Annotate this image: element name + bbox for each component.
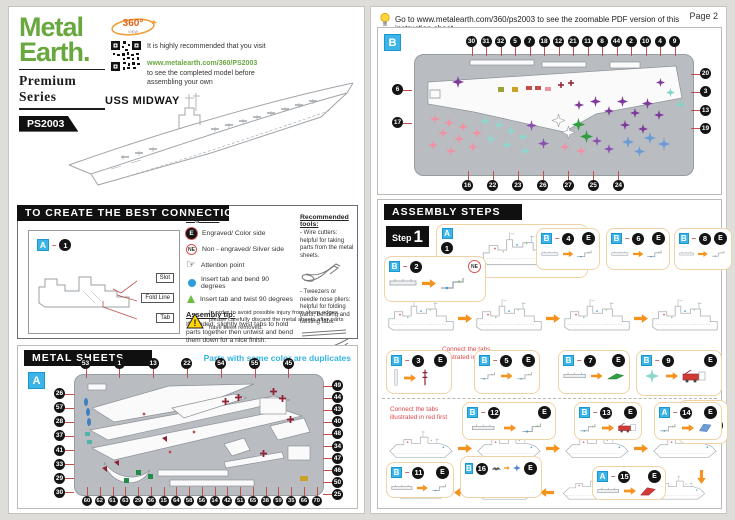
assembly-section: ASSEMBLY STEPS Step 1 A 1 B – 2 NE [377,199,722,509]
engraved-marker: E [714,232,727,245]
part-number-badge: 26 [54,388,65,399]
part-number-badge: 65 [248,496,258,506]
callout-part-number: 3 [412,355,424,367]
part-number-badge: 54 [215,358,226,369]
part-number-badge: 70 [312,496,322,506]
callout-b8: B – 8 E [674,228,732,270]
attention-hand-icon: ☞ [186,260,196,271]
callout-part-number: 12 [488,407,500,419]
part-number-badge: 18 [539,36,550,47]
page-1: Metal Earth. Premium Series PS2003 360° … [8,6,365,514]
callout-dash: – [481,408,485,417]
part-number-badge: 22 [181,358,192,369]
callout-b9: B – 9 E [636,350,722,396]
legend-non-engraved-label: Non - engraved/ Silver side [202,246,284,253]
part-folded-sketch [606,369,625,382]
fold-arrow-icon [698,250,708,258]
down-arrow [692,470,710,484]
callout-part-number: 7 [584,355,596,367]
fold-arrow-icon [422,279,436,288]
example-part-number: 1 [59,239,71,251]
part-number-badge: 41 [54,445,65,456]
callout-dash: – [692,234,696,243]
callout-part-number: 1 [441,242,453,254]
part-flat-sketch [611,249,630,259]
sheet-b-numbers-left: 617 [392,84,403,128]
part-number-badge: 6 [392,84,403,95]
callout-dash: – [625,234,629,243]
callout-part-number: 11 [412,467,424,479]
engraved-marker: E [524,462,537,475]
callout-sheet-badge: A [442,228,453,239]
fold-arrow-icon [591,372,603,380]
part-number-badge: 56 [197,496,207,506]
callout-sheet-badge: A [597,471,608,482]
legend-engraved: E Engraved/ Color side [186,228,294,239]
callout-sheet-badge: B [541,233,552,244]
example-dash: – [52,241,56,250]
part-number-badge: 15 [159,496,169,506]
callout-b12: B – 12 E [462,402,556,440]
part-number-badge: 1 [114,358,125,369]
callout-sheet-badge: B [391,355,402,366]
part-number-badge: 42 [222,496,232,506]
part-flat-sketch [563,371,588,381]
legend-twist: Insert tab and twist 90 degrees [186,295,294,303]
sheet-a-numbers-top: 5311322545545 [80,358,294,369]
callout-sheet-badge: B [479,355,490,366]
part-number-badge: 8 [597,36,608,47]
red-note-2: Connect the tabs illustrated in red firs… [390,406,454,422]
part-number-badge: 63 [120,496,130,506]
part-flat-sketch [391,369,401,387]
part-number-badge: 10 [640,36,651,47]
fold-arrow-icon [404,374,416,382]
part-number-badge: 29 [54,473,65,484]
part-number-badge: 44 [332,392,343,403]
callout-sheet-badge: B [679,233,689,244]
part-number-badge: 9 [669,36,680,47]
logo-earth: Earth. [19,40,109,65]
callout-sheet-badge: B [579,407,590,418]
part-number-badge: 60 [82,496,92,506]
wire-cutters-icon [300,260,350,284]
callout-sheet-badge: B [563,355,574,366]
part-number-badge: 59 [273,496,283,506]
callout-part-number: 13 [600,407,612,419]
engraved-marker: E [538,406,551,419]
engraved-marker: E [434,354,447,367]
part-result-sketch [617,421,637,434]
sheet-b-artwork [414,54,694,176]
tools-column: Recommended tools: - Wire cutters: helpf… [300,214,354,362]
part-folded-sketch [576,247,595,260]
callout-part-number: 14 [680,407,692,419]
part-number-badge: 45 [283,358,294,369]
engraved-marker: E [624,406,637,419]
part-number-badge: 26 [537,180,548,191]
callout-dash: – [403,262,407,271]
part-number-badge: 50 [332,477,343,488]
part-number-badge: 14 [210,496,220,506]
part-number-badge: 17 [392,117,403,128]
part-number-badge: 28 [54,416,65,427]
callout-a15: A – 15 E [592,466,666,500]
part-folded-sketch [419,369,431,387]
engraved-marker: E [612,354,625,367]
legend-non-engraved: NE Non - engraved/ Silver side [186,244,294,255]
callout-b13: B – 13 E [574,402,642,440]
step-1-badge: Step 1 [386,226,429,247]
part-number-badge: 34 [332,441,343,452]
part-number-badge: 37 [54,430,65,441]
warning-triangle-icon: ! [186,313,204,329]
callout-sheet-badge: B [465,463,473,474]
callout-part-number: 9 [662,355,674,367]
label-fold-line: Fold Line [141,293,174,303]
part-number-badge: 49 [332,380,343,391]
ship-illustration [61,65,366,208]
part-flat-sketch [391,483,414,493]
fold-arrow-icon [624,487,636,495]
callout-part-number: 16 [476,463,488,475]
non-engraved-icon: NE [186,244,197,255]
sheet-b-section: B [377,27,722,195]
next-step-arrow [634,310,648,328]
connection-example-box: A – 1 Slot Fold Line Tab [28,230,180,334]
example-sheet-badge: A [37,239,49,251]
next-step-arrow [546,440,560,458]
callout-a14: A – 14 E [654,402,722,440]
page-2: Go to www.metalearth.com/360/ps2003 to s… [370,6,727,514]
part-number-badge: 3 [700,86,711,97]
part-folded-sketch [711,247,727,260]
part-number-badge: 30 [54,487,65,498]
callout-b11: B – 11 E [386,462,454,498]
engraved-marker: E [582,232,595,245]
part-number-badge: 61 [108,496,118,506]
part-flat-sketch [541,249,560,259]
engraved-marker: E [704,354,717,367]
part-number-badge: 48 [332,428,343,439]
rec-line1: It is highly recommended that you visit [147,43,275,52]
sheet-a-badge: A [28,372,45,389]
fold-arrow-icon [633,250,643,258]
callout-dash: – [655,356,659,365]
part-number-badge: 30 [466,36,477,47]
sheet-a-numbers-left: 2657283741332930 [54,388,65,498]
part-number-badge: 21 [568,36,579,47]
callout-dash: – [555,234,559,243]
callout-part-number: 15 [618,471,630,483]
callout-part-number: 8 [699,233,711,245]
callout-sheet-badge: B [389,261,400,272]
callout-sheet-badge: A [659,407,670,418]
svg-text:!: ! [194,318,197,328]
fold-arrow-icon [501,372,513,380]
callout-part-number: 2 [410,261,422,273]
part-number-badge: 44 [611,36,622,47]
part-number-badge: 19 [700,123,711,134]
part-number-badge: 46 [332,465,343,476]
part-flat-sketch [467,423,501,433]
example-part-sketch [33,257,137,327]
sheet-b-numbers-bottom: 16222326272524 [462,180,624,191]
fold-arrow-icon [504,464,510,472]
fold-arrow-icon [666,372,678,380]
fold-arrow-icon [504,424,516,432]
assembly-diagram-2 [474,292,544,345]
part-number-badge: 57 [54,402,65,413]
part-number-badge: 43 [332,404,343,415]
step-divider [382,398,717,399]
callout-sheet-badge: B [611,233,622,244]
part-flat-sketch [579,421,599,434]
next-step-arrow [634,440,648,458]
legend-twist-label: Insert tab and twist 90 degrees [200,296,293,303]
part-number-badge: 25 [332,489,343,500]
engraved-icon: E [186,228,197,239]
green-triangle-icon [187,295,195,303]
part-folded-sketch [439,275,469,291]
part-number-badge: 13 [700,105,711,116]
callout-b3: B – 3 E [386,350,452,394]
aircraft-part-sketch [641,369,663,383]
next-step-arrow [458,310,472,328]
part-number-badge: 62 [95,496,105,506]
badge-360: 360° VIEW [109,11,157,39]
part-number-badge: 40 [332,416,343,427]
part-number-badge: 64 [171,496,181,506]
part-folded-sketch [646,247,665,260]
part-number-badge: 31 [481,36,492,47]
part-number-badge: 4 [655,36,666,47]
connections-section: TO CREATE THE BEST CONNECTIONS A – 1 Slo [17,205,358,339]
legend-engraved-label: Engraved/ Color side [202,230,265,237]
part-number-badge: 66 [299,496,309,506]
part-number-badge: 53 [80,358,91,369]
part-flat-sketch [659,421,679,434]
legends-title: Legends: [186,214,294,223]
part-number-badge: 25 [588,180,599,191]
part-number-badge: 5 [510,36,521,47]
part-folded-sketch [431,481,449,494]
sheet-a-numbers-right: 49444340483447465025 [332,380,343,500]
badge-360-sub: VIEW [128,29,138,34]
warning-row: ! In order to avoid possible injury from… [186,310,354,332]
part-number-badge: 7 [524,36,535,47]
sheet-b-numbers-top: 303132571812211184421049 [466,36,680,47]
part-number-badge: 33 [54,459,65,470]
part-number-badge: 16 [462,180,473,191]
callout-b16: B 16 E [460,456,542,498]
part-number-badge: 11 [582,36,593,47]
part-number-badge: 38 [261,496,271,506]
part-number-badge: 27 [563,180,574,191]
callout-dash: – [611,472,615,481]
callout-part-number: 5 [500,355,512,367]
crane-truck-sketch [681,369,707,383]
badge-360-text: 360° [123,18,144,29]
label-slot: Slot [156,273,174,283]
callout-sheet-badge: B [641,355,652,366]
part-number-badge: 2 [626,36,637,47]
fold-arrow-icon [563,250,573,258]
callout-part-number: 4 [562,233,574,245]
blue-dot-icon [188,279,196,287]
step-number: 1 [414,228,423,245]
part-flat-sketch [389,277,419,289]
callout-b7: B – 7 E [558,350,630,394]
engraved-marker: E [704,406,717,419]
legend-bend-label: Insert tab and bend 90 degrees [201,276,294,290]
part-number-badge: 20 [700,68,711,79]
callout-part-number: 6 [632,233,644,245]
engraved-marker: E [648,470,661,483]
callout-dash: – [493,356,497,365]
fold-arrow-icon [417,484,428,492]
part-number-badge: 13 [148,358,159,369]
label-tab: Tab [156,313,174,323]
fold-arrow-icon [682,424,694,432]
part-flat-sketch [479,369,498,382]
part-number-badge: 58 [184,496,194,506]
assembly-title: ASSEMBLY STEPS [384,204,522,220]
metal-sheets-section: METAL SHEETS Parts with same color are d… [17,345,358,509]
step-word: Step [392,233,412,245]
tool-wire-cutters-text: - Wire cutters: helpful for taking parts… [300,230,354,260]
callout-dash: – [673,408,677,417]
page-number: Page 2 [689,11,718,21]
tools-title: Recommended tools: [300,214,354,228]
part-number-badge: 32 [495,36,506,47]
legend-attention-label: Attention point [201,262,244,269]
part-number-badge: 29 [133,496,143,506]
sheet-a-artwork [74,374,324,496]
warning-text: In order to avoid possible injury from s… [209,310,354,332]
callout-dash: – [577,356,581,365]
legend-attention: ☞ Attention point [186,260,294,271]
part-number-badge: 12 [553,36,564,47]
sheet-a-numbers-bottom: 60626163293615645856144251653859356670 [82,496,322,506]
engraved-marker: E [652,232,665,245]
legend-bend: Insert tab and bend 90 degrees [186,276,294,290]
part-number-badge: 51 [235,496,245,506]
sheet-b-badge: B [384,34,401,51]
callout-sheet-badge: B [467,407,478,418]
part-result-sketch [697,421,715,434]
part-flat-sketch [679,249,695,259]
sheet-b-numbers-right: 2031319 [700,68,711,134]
part-number-badge: 35 [286,496,296,506]
callout-b5: B – 5 E [474,350,540,394]
fold-arrow-icon [602,424,614,432]
next-step-arrow [546,310,560,328]
callout-b4: B – 4 E [536,228,600,270]
part-number-badge: 23 [512,180,523,191]
prev-step-arrow-left [540,484,554,502]
callout-dash: – [405,356,409,365]
part-flat-sketch [597,486,621,496]
engraved-marker: E [436,466,449,479]
non-engraved-marker: NE [468,260,481,273]
callout-b2: B – 2 NE [384,256,486,302]
callout-sheet-badge: B [391,467,402,478]
assembly-diagram-4 [650,292,720,345]
part-folded-sketch [516,369,535,382]
lightbulb-icon [379,12,391,27]
part-bird-sketch [491,462,502,475]
part-number-badge: 36 [146,496,156,506]
part-result-sketch [513,460,521,476]
part-result-sketch [639,485,657,497]
part-number-badge: 47 [332,453,343,464]
engraved-marker: E [522,354,535,367]
assembly-diagram-3 [562,292,632,345]
part-number-badge: 22 [487,180,498,191]
callout-b6: B – 6 E [606,228,670,270]
part-number-badge: 24 [613,180,624,191]
part-folded-sketch [519,421,547,434]
part-number-badge: 55 [249,358,260,369]
callout-dash: – [405,468,409,477]
callout-dash: – [593,408,597,417]
